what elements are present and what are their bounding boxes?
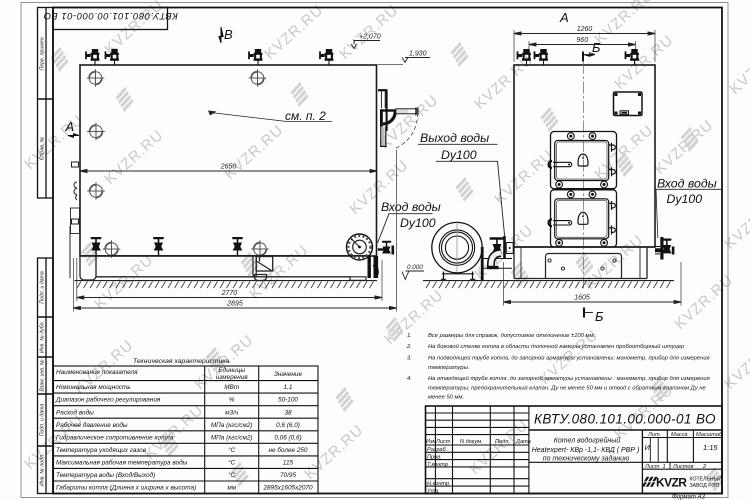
svg-text:не более 250: не более 250 bbox=[268, 446, 307, 454]
svg-text:Т.контр: Т.контр bbox=[427, 462, 448, 468]
svg-text:N докум.: N докум. bbox=[460, 439, 483, 445]
svg-text:1,930: 1,930 bbox=[409, 51, 427, 58]
svg-text:МВт: МВт bbox=[224, 384, 240, 391]
svg-text:Dy100: Dy100 bbox=[400, 216, 436, 230]
svg-text:Пров.: Пров. bbox=[427, 455, 442, 461]
svg-text:Подп. и дата: Подп. и дата bbox=[40, 404, 46, 437]
svg-text:измерения: измерения bbox=[216, 374, 249, 381]
svg-text:Наименование показателя: Наименование показателя bbox=[56, 369, 138, 376]
svg-text:Максимальная рабочая температу: Максимальная рабочая температура воды bbox=[56, 458, 188, 466]
svg-text:На подводящей трубе котла, до: На подводящей трубе котла, до запорной а… bbox=[428, 355, 710, 362]
svg-text:°С: °С bbox=[228, 471, 236, 479]
svg-text:МПа (кгс/см2): МПа (кгс/см2) bbox=[211, 422, 253, 429]
svg-text:Расход воды: Расход воды bbox=[56, 408, 94, 416]
svg-text:50-100: 50-100 bbox=[278, 397, 298, 404]
svg-text:Heatexpert- КВр -1,1- КВД ( РВ: Heatexpert- КВр -1,1- КВД ( РВР ) bbox=[532, 447, 640, 454]
svg-text:2770: 2770 bbox=[221, 290, 238, 297]
svg-text:Гидравлическое сопротивление к: Гидравлическое сопротивление котла bbox=[56, 433, 174, 441]
svg-text:Лист: Лист bbox=[435, 439, 451, 445]
svg-text:+2,070: +2,070 bbox=[359, 34, 381, 41]
svg-text:Масштаб: Масштаб bbox=[696, 432, 723, 438]
svg-text:Формат А3: Формат А3 bbox=[672, 495, 705, 500]
svg-text:Номинальная мощность: Номинальная мощность bbox=[56, 384, 131, 391]
svg-text:Котел водогрейный: Котел водогрейный bbox=[554, 437, 621, 445]
svg-text:1260: 1260 bbox=[577, 26, 593, 33]
svg-text:Подп. и дата: Подп. и дата bbox=[40, 271, 46, 304]
svg-text:Техническая характеристика: Техническая характеристика bbox=[133, 358, 229, 365]
svg-text:Вход воды: Вход воды bbox=[657, 177, 717, 191]
svg-text:Вход воды: Вход воды bbox=[381, 200, 441, 214]
svg-text:0,06 (0,6): 0,06 (0,6) bbox=[274, 434, 301, 441]
svg-text:м3/ч: м3/ч bbox=[225, 409, 239, 416]
svg-text:Температура уходящих газов: Температура уходящих газов bbox=[56, 446, 147, 454]
svg-text:Габариты котла (Длинна х ширин: Габариты котла (Длинна х ширина х высота… bbox=[56, 484, 196, 492]
svg-text:И: И bbox=[645, 443, 651, 452]
svg-text:Разраб.: Разраб. bbox=[427, 447, 447, 453]
svg-text:0,6 (6,0): 0,6 (6,0) bbox=[276, 422, 300, 429]
svg-text:70/95: 70/95 bbox=[280, 472, 296, 479]
svg-text:Подп.: Подп. bbox=[495, 439, 510, 445]
svg-text:Перв. примен.: Перв. примен. bbox=[40, 36, 46, 70]
svg-text:2895: 2895 bbox=[226, 301, 243, 308]
svg-text:2895х1605х2070: 2895х1605х2070 bbox=[262, 485, 312, 492]
svg-text:Утв.: Утв. bbox=[426, 489, 440, 495]
svg-text:1: 1 bbox=[663, 464, 666, 470]
svg-text:Диапазон рабочего регулировани: Диапазон рабочего регулирования bbox=[55, 396, 161, 404]
svg-text:1:15: 1:15 bbox=[703, 443, 718, 452]
svg-text:Инв. № дубл.: Инв. № дубл. bbox=[40, 321, 46, 353]
svg-text:38: 38 bbox=[284, 409, 292, 416]
svg-text:960: 960 bbox=[576, 37, 588, 44]
svg-text:Изм: Изм bbox=[426, 439, 437, 445]
svg-text:МПа (кгс/см2): МПа (кгс/см2) bbox=[211, 434, 253, 441]
svg-text:см. п. 2: см. п. 2 bbox=[285, 109, 326, 123]
svg-text:Температура воды (Вход/Выход): Температура воды (Вход/Выход) bbox=[56, 471, 155, 479]
svg-text:по техническому заданию: по техническому заданию bbox=[543, 455, 630, 463]
svg-text:Б: Б bbox=[592, 40, 601, 55]
svg-text:Лист: Лист bbox=[644, 464, 660, 470]
svg-text:Рабочее давление воды: Рабочее давление воды bbox=[56, 421, 128, 429]
svg-text:115: 115 bbox=[283, 459, 294, 466]
svg-text:1.: 1. bbox=[407, 333, 412, 339]
svg-text:Выход воды: Выход воды bbox=[420, 131, 489, 145]
svg-text:КВТУ.080.101.00.000-01 ВО: КВТУ.080.101.00.000-01 ВО bbox=[534, 412, 716, 427]
svg-text:Листов: Листов bbox=[672, 464, 693, 470]
svg-text:Н.контр: Н.контр bbox=[427, 481, 449, 487]
svg-text:На боковой стенке котла в обла: На боковой стенке котла в области топочн… bbox=[428, 343, 685, 350]
svg-text:Значение: Значение bbox=[274, 371, 302, 378]
svg-text:4.: 4. bbox=[407, 376, 412, 382]
svg-text:KVZR: KVZR bbox=[656, 476, 687, 490]
svg-text:Справ. №: Справ. № bbox=[40, 136, 46, 160]
svg-text:1605: 1605 bbox=[574, 295, 590, 302]
svg-text:температуры, предохранительный: температуры, предохранительный клапан. Д… bbox=[428, 385, 707, 392]
svg-text:0.000: 0.000 bbox=[407, 264, 423, 271]
svg-text:3.: 3. bbox=[407, 356, 412, 362]
svg-text:На отводящей трубе котла ,до з: На отводящей трубе котла ,до запорной ар… bbox=[428, 375, 710, 382]
svg-text:Дата: Дата bbox=[515, 439, 531, 445]
svg-text:А: А bbox=[65, 119, 75, 134]
svg-text:В: В bbox=[224, 27, 233, 42]
svg-text:Единицы: Единицы bbox=[218, 366, 245, 374]
svg-text:менее 50 мм.: менее 50 мм. bbox=[428, 395, 464, 401]
svg-text:1,1: 1,1 bbox=[284, 384, 293, 391]
svg-text:А: А bbox=[559, 10, 569, 25]
svg-text:Б: Б bbox=[595, 309, 604, 324]
svg-text:Все размеры для справок, допус: Все размеры для справок, допустимое откл… bbox=[428, 333, 595, 339]
svg-text:°С: °С bbox=[228, 446, 236, 454]
svg-text:%: % bbox=[229, 397, 235, 404]
svg-text:Инв. № подл.: Инв. № подл. bbox=[40, 454, 46, 486]
svg-text:Масса: Масса bbox=[671, 432, 688, 438]
svg-text:Взам. инв. №: Взам. инв. № bbox=[40, 359, 46, 391]
svg-text:КВТУ.080.101.00.000-01 ВО: КВТУ.080.101.00.000-01 ВО bbox=[43, 10, 178, 21]
svg-text:КОТЕЛЬНЫЙ: КОТЕЛЬНЫЙ bbox=[690, 475, 723, 483]
svg-text:2650: 2650 bbox=[220, 164, 237, 171]
svg-text:Лит.: Лит. bbox=[647, 432, 661, 438]
svg-text:ЗАВОД РЭП: ЗАВОД РЭП bbox=[690, 483, 720, 489]
svg-text:мм: мм bbox=[227, 485, 236, 492]
svg-text:°С: °С bbox=[228, 458, 236, 466]
svg-text:температуры.: температуры. bbox=[428, 365, 470, 371]
svg-text:Dy100: Dy100 bbox=[667, 192, 703, 206]
svg-text:Dy100: Dy100 bbox=[441, 148, 477, 162]
svg-text:2.: 2. bbox=[406, 344, 412, 350]
